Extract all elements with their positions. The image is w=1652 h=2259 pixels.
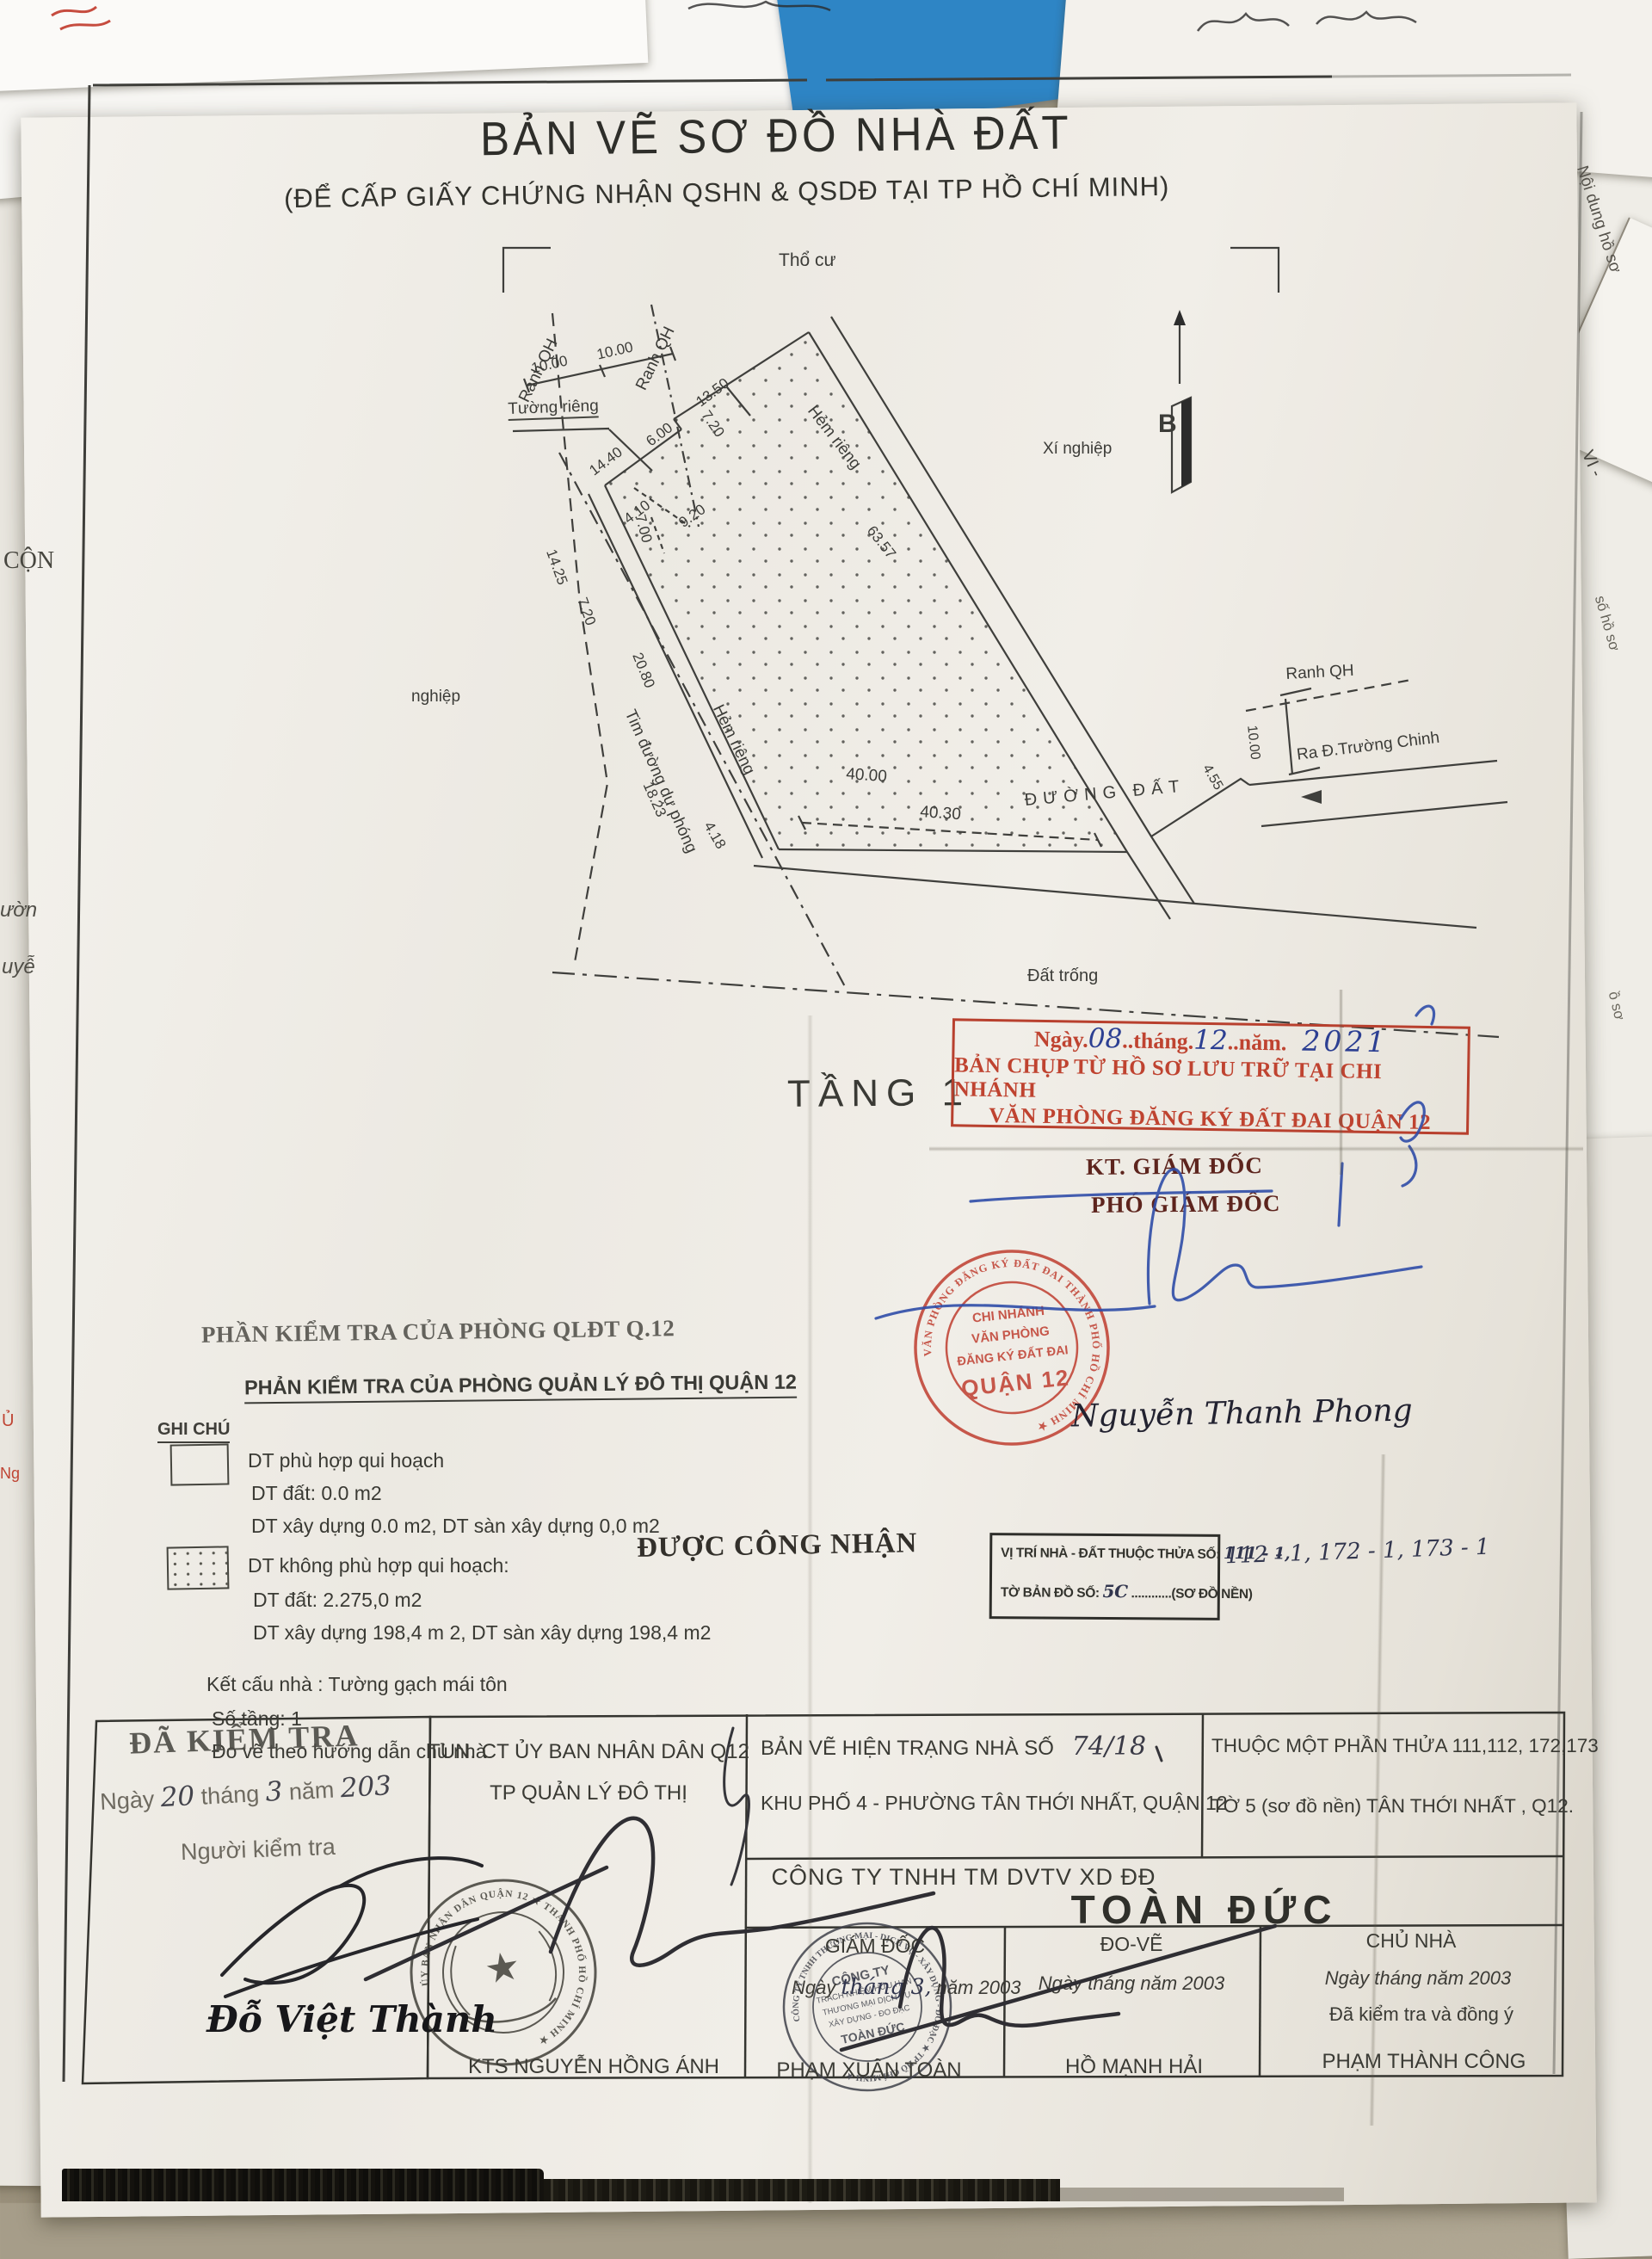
bottom-dark-strip-2 — [544, 2179, 1060, 2201]
director-signature — [366, 1818, 1275, 2050]
blue-ink-signature — [876, 1006, 1434, 1318]
ink-layer — [0, 0, 1652, 2203]
check-squiggle — [724, 1728, 1162, 1885]
red-scribble-top-left — [52, 7, 110, 29]
inspector-signature — [222, 1858, 482, 1997]
background-scribbles — [688, 2, 1416, 31]
bottom-dark-strip-3 — [1060, 2188, 1344, 2201]
bottom-dark-strip-1 — [62, 2169, 544, 2201]
